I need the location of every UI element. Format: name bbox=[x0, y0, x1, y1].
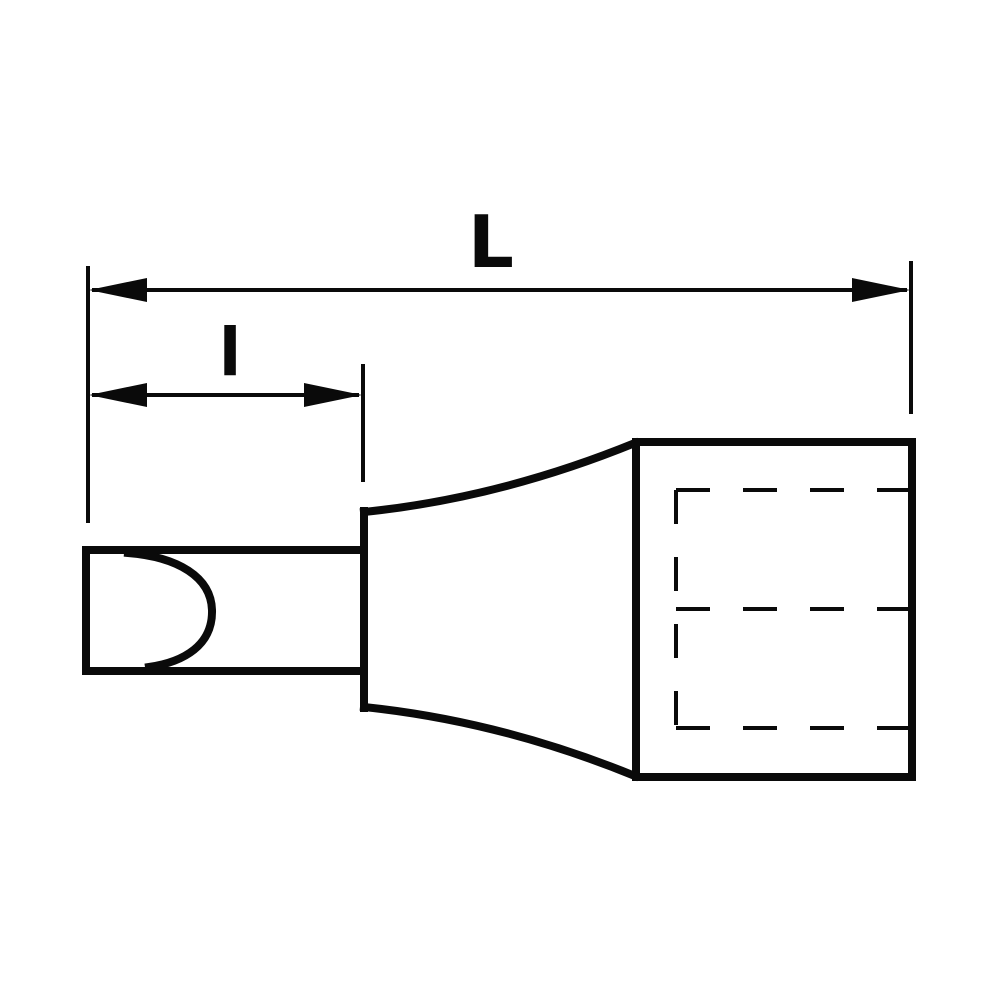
drawing-background bbox=[0, 0, 1000, 1000]
technical-drawing-canvas: L l bbox=[0, 0, 1000, 1000]
tip-length-label: l bbox=[219, 314, 242, 391]
technical-drawing-page: L l bbox=[0, 0, 1000, 1000]
overall-length-label: L bbox=[468, 200, 514, 284]
